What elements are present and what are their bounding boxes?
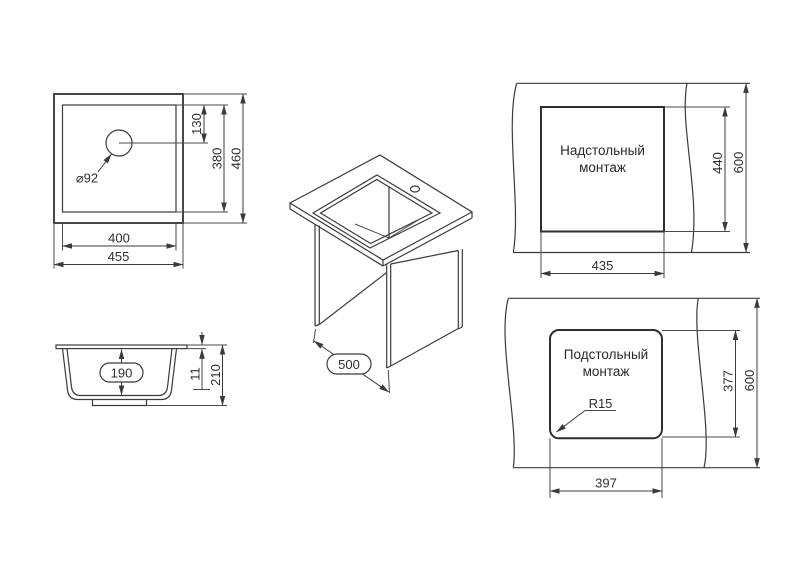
overmount-view: Надстольный монтаж 435 440 600 <box>512 83 750 278</box>
dim-inner-width-label: 400 <box>108 231 130 246</box>
iso-counter-top-face <box>290 155 472 260</box>
dim-bowl-depth-label: 190 <box>111 366 133 381</box>
iso-sink-rim-inner <box>321 180 433 244</box>
dim-undermount-counter-depth-label: 600 <box>742 370 757 392</box>
undermount-title-line2: монтаж <box>583 364 630 379</box>
counter-break-left <box>512 83 516 252</box>
counter-break-right <box>685 83 694 252</box>
iso-sink-rim-outer <box>313 175 440 248</box>
dim-overmount-width-label: 435 <box>592 258 614 273</box>
dim-outer-depth-label: 460 <box>229 148 244 170</box>
iso-right-panel-bottom <box>391 329 459 367</box>
sink-outer-outline <box>54 94 183 223</box>
hole-diameter-label: ⌀92 <box>76 171 98 186</box>
dim-overmount-counter-depth-label: 600 <box>731 152 746 174</box>
dim-base-depth-label: 500 <box>338 357 360 372</box>
top-view: ⌀92 130 380 460 400 455 <box>54 94 247 269</box>
dim-undermount-height-label: 377 <box>721 370 736 392</box>
iso-cabinet-interior-edge <box>319 273 386 325</box>
corner-radius-label: R15 <box>589 396 613 411</box>
drain-foot <box>93 400 147 406</box>
sink-technical-drawing: ⌀92 130 380 460 400 455 <box>0 0 800 569</box>
dim-outer-width-label: 455 <box>108 249 130 264</box>
faucet-hole <box>411 186 420 192</box>
counter-break-left-2 <box>505 298 514 467</box>
counter-break-right-2 <box>697 298 706 467</box>
dim-overmount-height-label: 440 <box>710 152 725 174</box>
hole-leader-line <box>98 154 111 172</box>
overmount-title-line2: монтаж <box>579 160 626 175</box>
iso-view: 500 <box>290 155 472 393</box>
dim-inner-depth-label: 380 <box>210 148 225 170</box>
undermount-view: Подстольный монтаж R15 397 377 600 <box>505 298 760 498</box>
overmount-title-line1: Надстольный <box>560 143 645 158</box>
dim-rim-height-label: 11 <box>188 367 203 381</box>
dim-undermount-width-label: 397 <box>595 476 617 491</box>
sink-bowl-outline <box>63 105 177 212</box>
dim-hole-offset-label: 130 <box>189 113 204 135</box>
sink-rim-section <box>56 345 187 349</box>
corner-radius-leader <box>557 411 586 433</box>
iso-right-panel-top <box>391 251 459 265</box>
section-view: 190 11 210 <box>56 332 227 406</box>
undermount-title-line1: Подстольный <box>564 347 648 362</box>
dim-overall-height-label: 210 <box>208 364 223 386</box>
technical-drawing-canvas: ⌀92 130 380 460 400 455 <box>0 0 800 569</box>
